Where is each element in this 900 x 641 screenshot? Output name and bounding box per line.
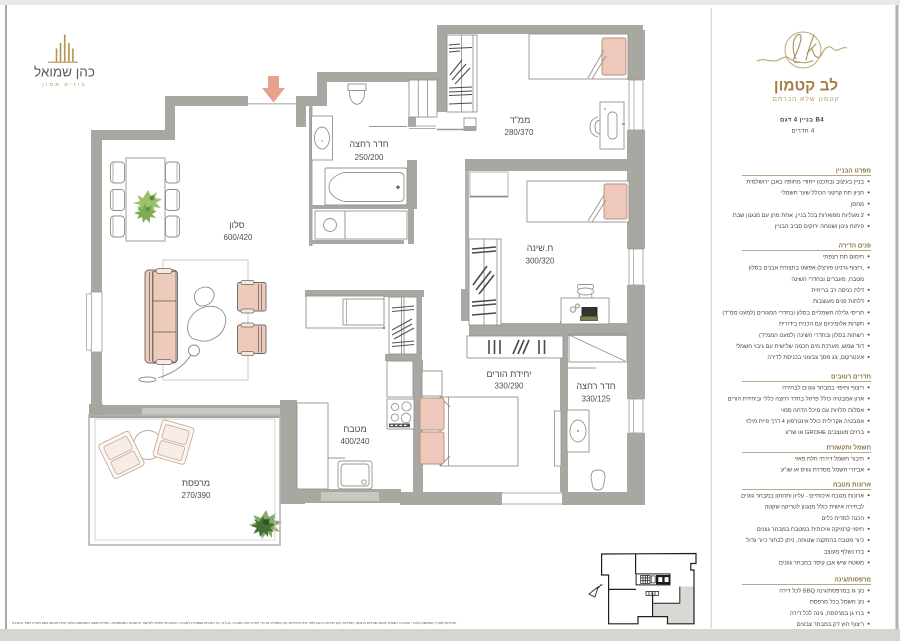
- svg-text:בונים אמון: בונים אמון: [42, 82, 86, 88]
- svg-text:ארונות מטבח איכותיים - עליון ו: ארונות מטבח איכותיים - עליון ותחתון במבח…: [741, 492, 864, 499]
- svg-text:משטח שיש אבן קיסר במבחר גוונים: משטח שיש אבן קיסר במבחר גוונים: [779, 561, 864, 567]
- svg-text:ברז גן במרפסת, גינה לכל דירה: ברז גן במרפסת, גינה לכל דירה: [790, 610, 865, 617]
- svg-text:ריצוף חוץ דק במבחר צבעים: ריצוף חוץ דק במבחר צבעים: [797, 622, 864, 628]
- svg-text:הכנה למדיח כלים: הכנה למדיח כלים: [821, 515, 864, 522]
- svg-text:ממ"ד: ממ"ד: [510, 115, 531, 125]
- svg-text:250/200: 250/200: [355, 153, 384, 162]
- svg-text:ברזים מעוצבים GROHE או שו"ע: ברזים מעוצבים GROHE או שו"ע: [785, 430, 864, 436]
- svg-text:לב קטמון: לב קטמון: [774, 78, 838, 95]
- svg-text:‏בניין 4 דגם B4: ‏בניין 4 דגם B4: [780, 118, 824, 124]
- svg-text:יחידת הורים: יחידת הורים: [487, 369, 532, 379]
- svg-text:400/240: 400/240: [341, 437, 370, 446]
- svg-text:‏4 חדרים: ‏4 חדרים: [791, 129, 814, 135]
- svg-text:חימום תת רצפתי: חימום תת רצפתי: [823, 254, 864, 260]
- svg-text:מפרט הבניין: מפרט הבניין: [836, 168, 872, 175]
- svg-text:תריסי גלילה חשמליים בסלון ובחד: תריסי גלילה חשמליים בסלון ובחדרי המגורים…: [722, 309, 864, 316]
- svg-text:300/320: 300/320: [526, 257, 555, 266]
- svg-text:מרפסות/גינה: מרפסות/גינה: [834, 577, 871, 584]
- svg-text:ריצוף וחיפוי במבחר גוונים לבחי: ריצוף וחיפוי במבחר גוונים לבחירה: [782, 384, 864, 391]
- svg-text:חיפוי קרמיקה איכותית במטבח במב: חיפוי קרמיקה איכותית במטבח במבחר גוונים: [757, 527, 864, 533]
- svg-text:ריצוף גרניט פורצלן אפשט בתצורת: ריצוף גרניט פורצלן אפשט בתצורת אבנים בסל…: [749, 265, 865, 272]
- svg-text:חדרים רטובים: חדרים רטובים: [831, 374, 871, 381]
- svg-text:חיבור חשמל דירתי תלת פאזי: חיבור חשמל דירתי תלת פאזי: [795, 455, 865, 462]
- svg-text:מטבח: מטבח: [343, 424, 366, 434]
- svg-text:ארונות מטבח: ארונות מטבח: [833, 482, 872, 489]
- svg-text:פיתוח גינון ושטחה ירוקים סביב: פיתוח גינון ושטחה ירוקים סביב הבניין: [775, 224, 865, 230]
- svg-text:‏2 מעליות מפוארות בכל בניין, א: ‏2 מעליות מפוארות בכל בניין, אחת מהן עם …: [733, 212, 864, 219]
- svg-text:חדר רחצה: חדר רחצה: [576, 381, 615, 391]
- svg-text:ח.שינה: ח.שינה: [527, 243, 554, 253]
- svg-text:ארון אמבטיה כולל פרזול בחדר רח: ארון אמבטיה כולל פרזול בחדר רחצה כללי וב…: [728, 396, 865, 403]
- svg-text:כהן שמואל: כהן שמואל: [34, 65, 95, 80]
- svg-text:אינטרקום, צג מסך צבעוני בכניסת: אינטרקום, צג מסך צבעוני בכניסת לדירה: [767, 354, 864, 361]
- svg-text:סלון: סלון: [229, 220, 244, 230]
- svg-text:אביזרי חשמל מסדרת גוויס או שו": אביזרי חשמל מסדרת גוויס או שו"ע: [781, 467, 864, 474]
- svg-text:פנים הדירה: פנים הדירה: [839, 243, 871, 250]
- svg-text:ברז נשלף מעוצב: ברז נשלף מעוצב: [824, 548, 865, 555]
- svg-text:כיור מטבח בהתקנה שטוחה, ניתן ל: כיור מטבח בהתקנה שטוחה, ניתן לבחור כיור …: [746, 537, 864, 544]
- svg-text:נק' גז במרפסת/גינה BBQ לכל דיר: נק' גז במרפסת/גינה BBQ לכל דירה: [779, 587, 864, 594]
- svg-text:מחסן: מחסן: [851, 202, 864, 208]
- svg-text:רשתות בסלון ובחדרי השינה (למעט: רשתות בסלון ובחדרי השינה (למעט הממ"ד): [759, 332, 864, 339]
- svg-text:הדמיות לצורך המחשה בלבד. החברה: הדמיות לצורך המחשה בלבד. החברה רשאית לבצ…: [12, 621, 457, 625]
- svg-text:לבחירה אישית כולל מנגנון לטריק: לבחירה אישית כולל מנגנון לטריקה שקטה: [765, 504, 864, 511]
- svg-text:600/420: 600/420: [224, 233, 253, 242]
- svg-text:דלת כניסה רב בריחית: דלת כניסה רב בריחית: [811, 287, 864, 294]
- svg-text:נק' חשמל בכל מרפסת: נק' חשמל בכל מרפסת: [810, 599, 864, 606]
- svg-text:330/290: 330/290: [495, 382, 524, 391]
- svg-text:חשמל ותקשורת: חשמל ותקשורת: [826, 444, 871, 452]
- svg-text:280/370: 280/370: [505, 128, 534, 137]
- svg-text:מטבח, מעברים ובחדרי השינה: מטבח, מעברים ובחדרי השינה: [791, 277, 864, 283]
- svg-text:דוד שמש, מערכת מים חכמה שלישית: דוד שמש, מערכת מים חכמה שלישית עם גיבוי …: [735, 343, 864, 350]
- svg-text:חניון תת קרקעי הכולל שער חשמלי: חניון תת קרקעי הכולל שער חשמלי: [781, 190, 864, 197]
- svg-text:אמבטיה אקרילית כולל אינטרפוץ 4: אמבטיה אקרילית כולל אינטרפוץ 4 דרך פיית …: [746, 418, 865, 425]
- svg-text:תקרות אלומיניום עם הכנית בידור: תקרות אלומיניום עם הכנית בידורית: [779, 321, 864, 328]
- svg-text:דלתות פנים מעוצבות: דלתות פנים מעוצבות: [813, 298, 865, 305]
- svg-text:מרפסת: מרפסת: [182, 478, 210, 488]
- svg-text:330/125: 330/125: [582, 395, 611, 404]
- svg-text:אסלות תלויות עם מיכל הדחה סמוי: אסלות תלויות עם מיכל הדחה סמוי: [781, 407, 865, 414]
- svg-text:חדר רחצה: חדר רחצה: [349, 139, 388, 149]
- svg-text:270/390: 270/390: [182, 491, 211, 500]
- svg-text:בניין בעיצוב ובתכנון ייחודי מח: בניין בעיצוב ובתכנון ייחודי מחופה באבן י…: [746, 178, 864, 185]
- svg-text:קטמון שלא הכרתם: קטמון שלא הכרתם: [772, 95, 839, 103]
